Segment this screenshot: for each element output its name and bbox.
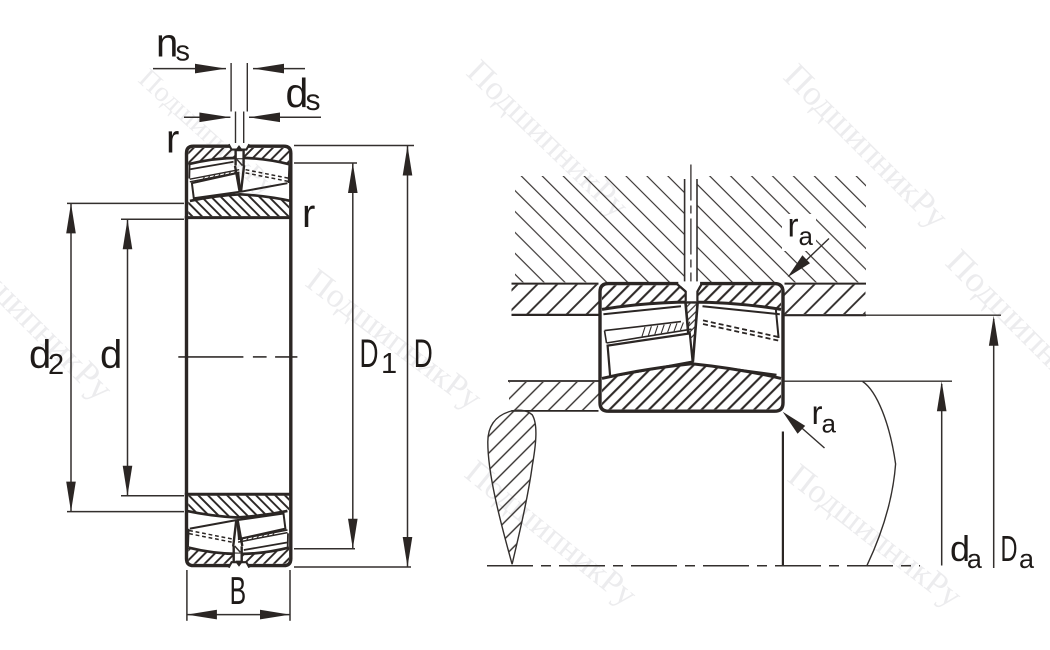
svg-text:ПодшипникРу: ПодшипникРу (299, 262, 488, 417)
svg-text:r: r (788, 207, 799, 244)
svg-text:1: 1 (381, 348, 397, 380)
svg-text:s: s (176, 36, 191, 68)
svg-text:ПодшипникРу: ПодшипникРу (781, 457, 969, 615)
svg-text:D: D (1001, 528, 1018, 569)
svg-text:ПодшипникРу: ПодшипникРу (458, 453, 644, 613)
svg-text:2: 2 (48, 349, 64, 381)
svg-text:D: D (360, 332, 379, 376)
svg-text:B: B (230, 570, 247, 613)
svg-text:a: a (967, 544, 983, 574)
svg-text:D: D (414, 332, 433, 376)
svg-text:r: r (302, 192, 315, 236)
svg-text:s: s (306, 84, 321, 117)
svg-text:d: d (100, 333, 122, 377)
svg-text:r: r (166, 118, 179, 162)
svg-text:a: a (1019, 544, 1035, 574)
svg-text:a: a (822, 409, 837, 439)
svg-text:a: a (799, 221, 814, 251)
